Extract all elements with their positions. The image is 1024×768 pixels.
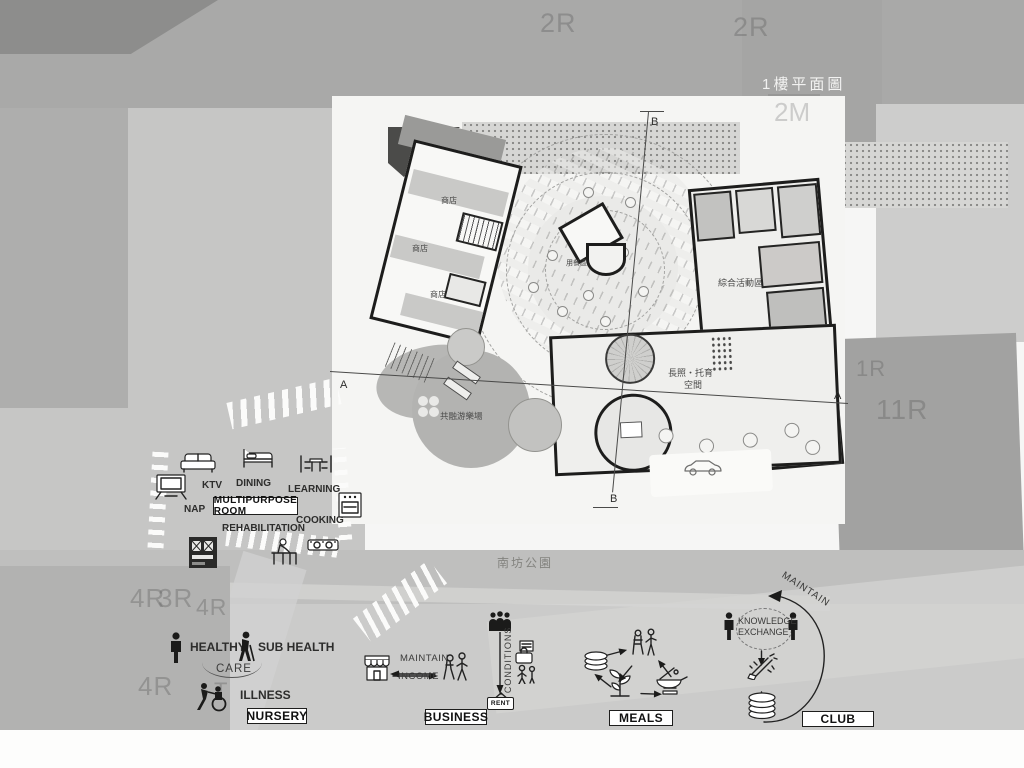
club-person-left-icon	[722, 612, 736, 641]
shop-label-3: 商店	[430, 290, 446, 299]
plaza-table	[638, 286, 649, 297]
site-label-2r-a: 2R	[540, 8, 577, 39]
section-b-bottom: B	[610, 493, 617, 506]
activity-room	[758, 241, 823, 288]
elevator-core	[443, 273, 486, 307]
elderly-couple-icon	[440, 652, 472, 682]
plaza-table	[583, 187, 594, 198]
section-b-bottom-bracket	[593, 507, 618, 508]
care-table	[805, 440, 821, 456]
meals-box: MEALS	[609, 710, 673, 726]
plaza-table	[583, 290, 594, 301]
sofa-icon	[178, 450, 218, 474]
bottom-white-strip	[0, 730, 1024, 768]
playground-label: 共融游樂場	[440, 412, 483, 422]
dining-area-label: 用餐區	[566, 260, 587, 268]
rehab-person-icon	[266, 536, 302, 566]
section-b-top-bracket	[640, 111, 664, 112]
plaza-table	[625, 197, 636, 208]
care-table	[658, 428, 674, 444]
park-label: 南坊公園	[497, 557, 553, 571]
care-space-label-2: 空間	[684, 380, 702, 390]
plaza-table	[547, 250, 558, 261]
club-coins-icon	[746, 692, 778, 720]
rehabilitation-label: REHABILITATION	[222, 523, 305, 535]
care-table	[742, 432, 758, 448]
meals-arrow	[640, 685, 663, 704]
income-label: INCOME	[398, 672, 439, 683]
room-table	[620, 421, 643, 438]
care-table	[784, 423, 800, 439]
activity-room	[693, 191, 735, 242]
shop-label-1: 商店	[441, 196, 457, 205]
pavilion-round-room	[586, 243, 626, 276]
plaza-table	[528, 282, 539, 293]
plan-title: 1樓平面圖	[762, 76, 845, 93]
right-pavement-dots	[842, 142, 1008, 208]
shop-icon	[362, 654, 392, 682]
activity-room	[735, 187, 777, 234]
round-stage	[604, 333, 656, 385]
activity-area-label: 綜合活動區	[718, 278, 763, 288]
stair-core	[456, 212, 504, 251]
site-label-4r-c: 4R	[138, 672, 173, 702]
site-label-4r-b: 4R	[196, 594, 227, 620]
playground-bench-circle	[447, 328, 485, 366]
learning-label: LEARNING	[288, 484, 340, 496]
ktv-label: KTV	[202, 480, 222, 492]
activity-room	[777, 183, 821, 238]
shop-slab	[408, 169, 509, 217]
sub-health-label: SUB HEALTH	[258, 641, 334, 655]
section-a-right: A	[834, 390, 841, 403]
site-label-2r-b: 2R	[733, 12, 770, 43]
knowledge-label-1: KNOWLEDGE	[738, 616, 788, 626]
care-space-label-1: 長照・托育	[668, 368, 713, 378]
vending-machine-icon	[188, 536, 218, 569]
tenants-icon	[514, 664, 538, 684]
right-road	[876, 104, 1024, 342]
stove-icon	[306, 536, 340, 553]
multipurpose-room-box: MULTIPURPOSE ROOM	[213, 497, 298, 515]
dining-label: DINING	[236, 478, 271, 490]
site-plan-board: 商店 商店 商店 用餐區 綜合活動區 長照・托育 空間	[0, 0, 1024, 768]
seat-grid	[710, 335, 734, 372]
section-b-top: B	[651, 116, 658, 129]
business-box: BUSINESS	[425, 709, 487, 725]
shop-label-2: 商店	[412, 244, 428, 253]
clover-glyph	[418, 396, 428, 406]
car-icon	[682, 458, 724, 478]
site-label-11r: 11R	[876, 394, 928, 426]
meals-elderly-pair-icon	[628, 628, 660, 656]
oven-icon	[336, 490, 364, 520]
healthy-person-icon	[168, 632, 184, 664]
craft-icon	[746, 652, 778, 680]
illness-wheelchair-icon	[196, 682, 230, 712]
tv-icon	[152, 472, 190, 502]
nap-label: NAP	[184, 504, 205, 516]
club-box: CLUB	[802, 711, 874, 727]
site-label-2m: 2M	[774, 98, 810, 128]
table-chairs-icon	[298, 450, 334, 476]
plaza-table	[557, 306, 568, 317]
section-a-left: A	[340, 379, 347, 392]
nursery-box: NURSERY	[247, 708, 307, 724]
knowledge-label-2: EXCHANGE	[738, 627, 788, 637]
site-label-1r: 1R	[856, 356, 886, 381]
bed-icon	[240, 446, 276, 472]
plaza-table	[600, 316, 611, 327]
playground-seesaw-circle	[508, 398, 562, 452]
rent-sign: RENT	[487, 697, 514, 710]
site-label-3r: 3R	[158, 584, 193, 614]
documents-icon	[512, 640, 536, 666]
illness-label: ILLNESS	[240, 689, 291, 703]
